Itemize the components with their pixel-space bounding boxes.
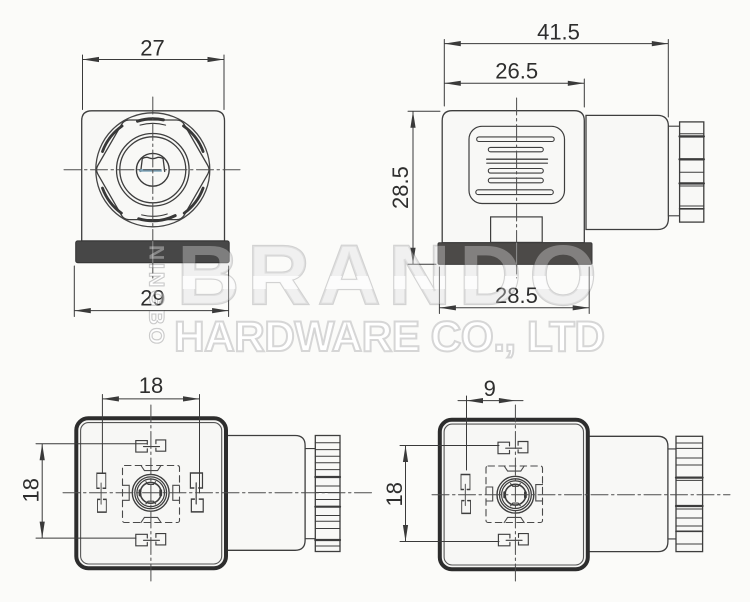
svg-text:41.5: 41.5 xyxy=(537,20,580,45)
svg-text:18: 18 xyxy=(19,478,44,502)
svg-text:18: 18 xyxy=(382,482,407,506)
svg-text:28.5: 28.5 xyxy=(388,166,413,209)
svg-text:9: 9 xyxy=(484,376,496,401)
svg-text:29: 29 xyxy=(140,286,164,311)
svg-text:HARDWARE CO., LTD: HARDWARE CO., LTD xyxy=(174,314,605,361)
svg-text:18: 18 xyxy=(139,373,163,398)
svg-text:26.5: 26.5 xyxy=(495,59,538,84)
svg-text:28.5: 28.5 xyxy=(495,283,538,308)
svg-text:27: 27 xyxy=(140,36,164,61)
